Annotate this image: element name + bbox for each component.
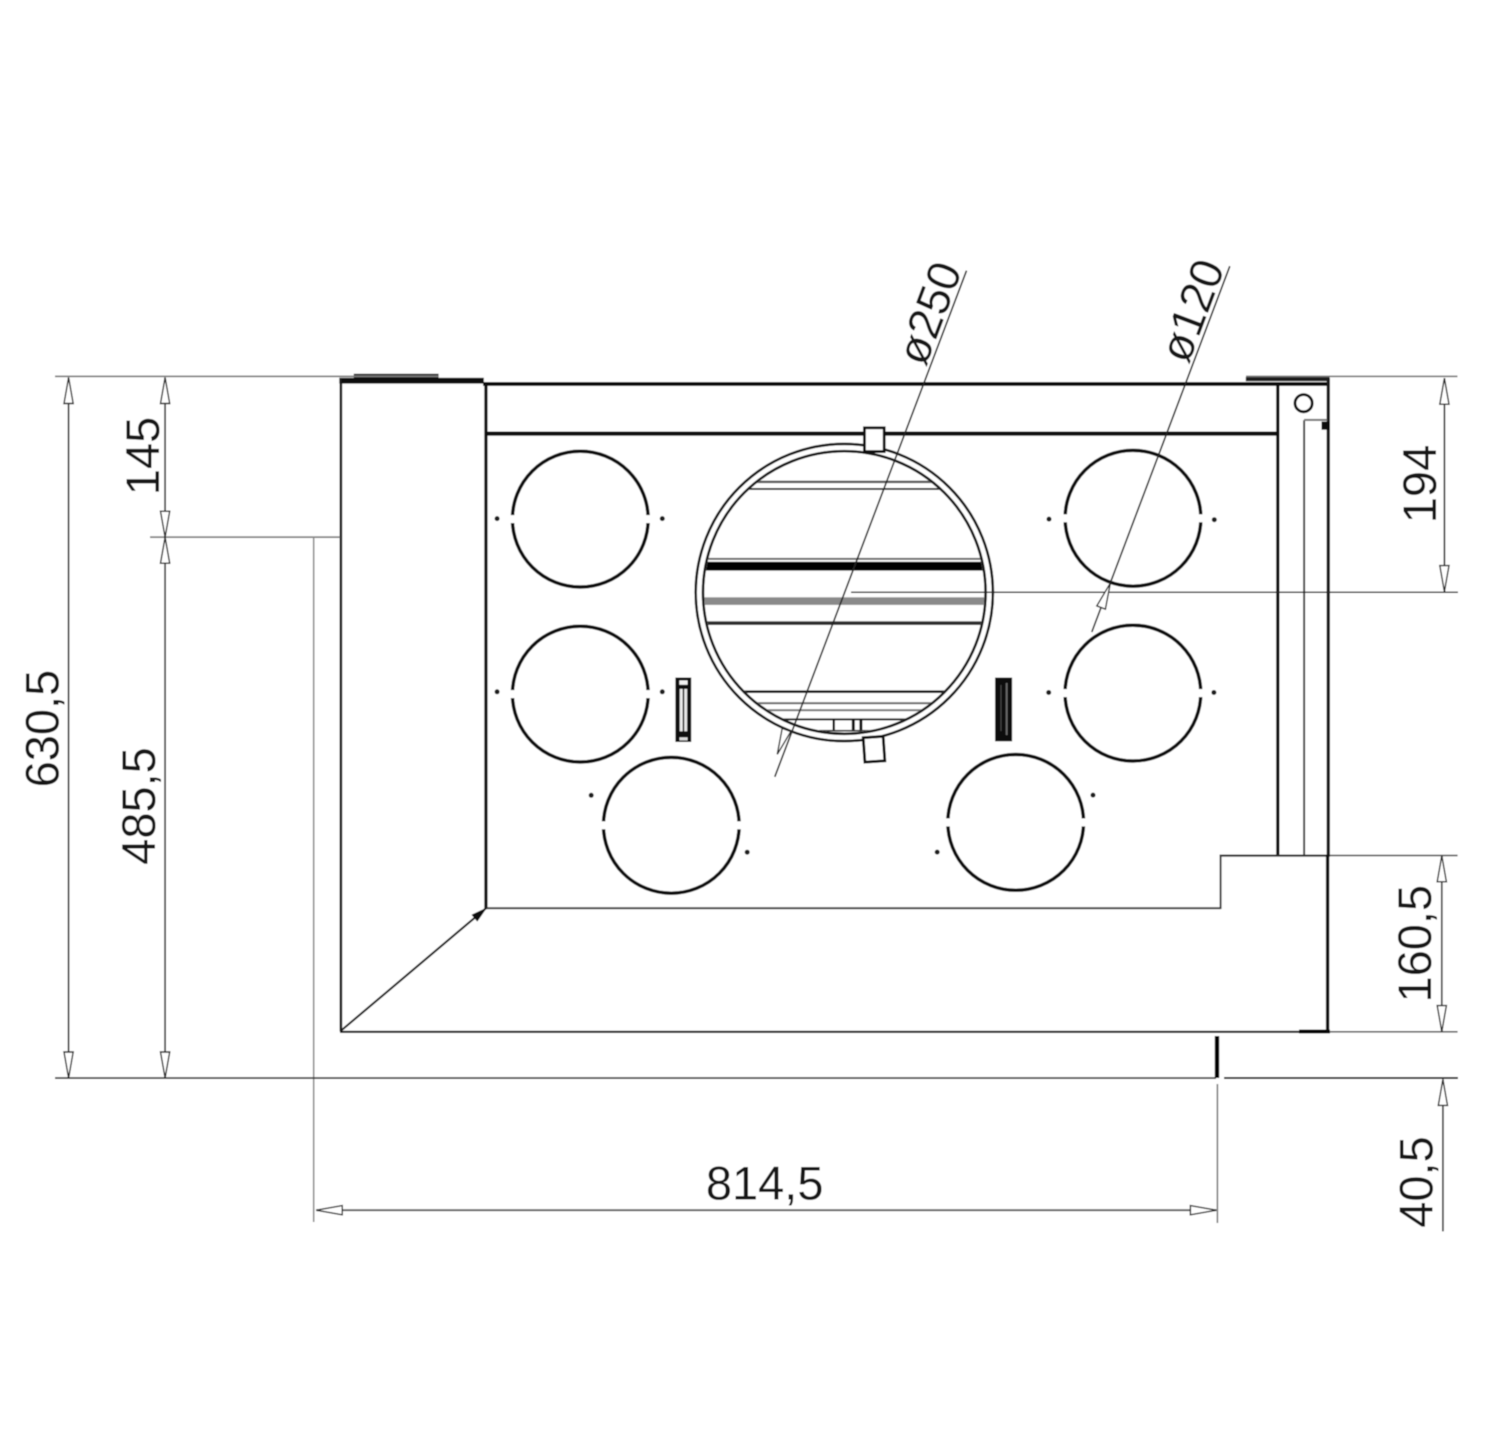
svg-text:194: 194 (1393, 445, 1446, 523)
svg-text:814,5: 814,5 (706, 1156, 824, 1209)
svg-text:40,5: 40,5 (1390, 1136, 1443, 1227)
svg-text:160,5: 160,5 (1388, 885, 1441, 1003)
svg-text:145: 145 (116, 417, 169, 495)
svg-text:485,5: 485,5 (112, 747, 165, 865)
svg-text:630,5: 630,5 (16, 670, 69, 788)
